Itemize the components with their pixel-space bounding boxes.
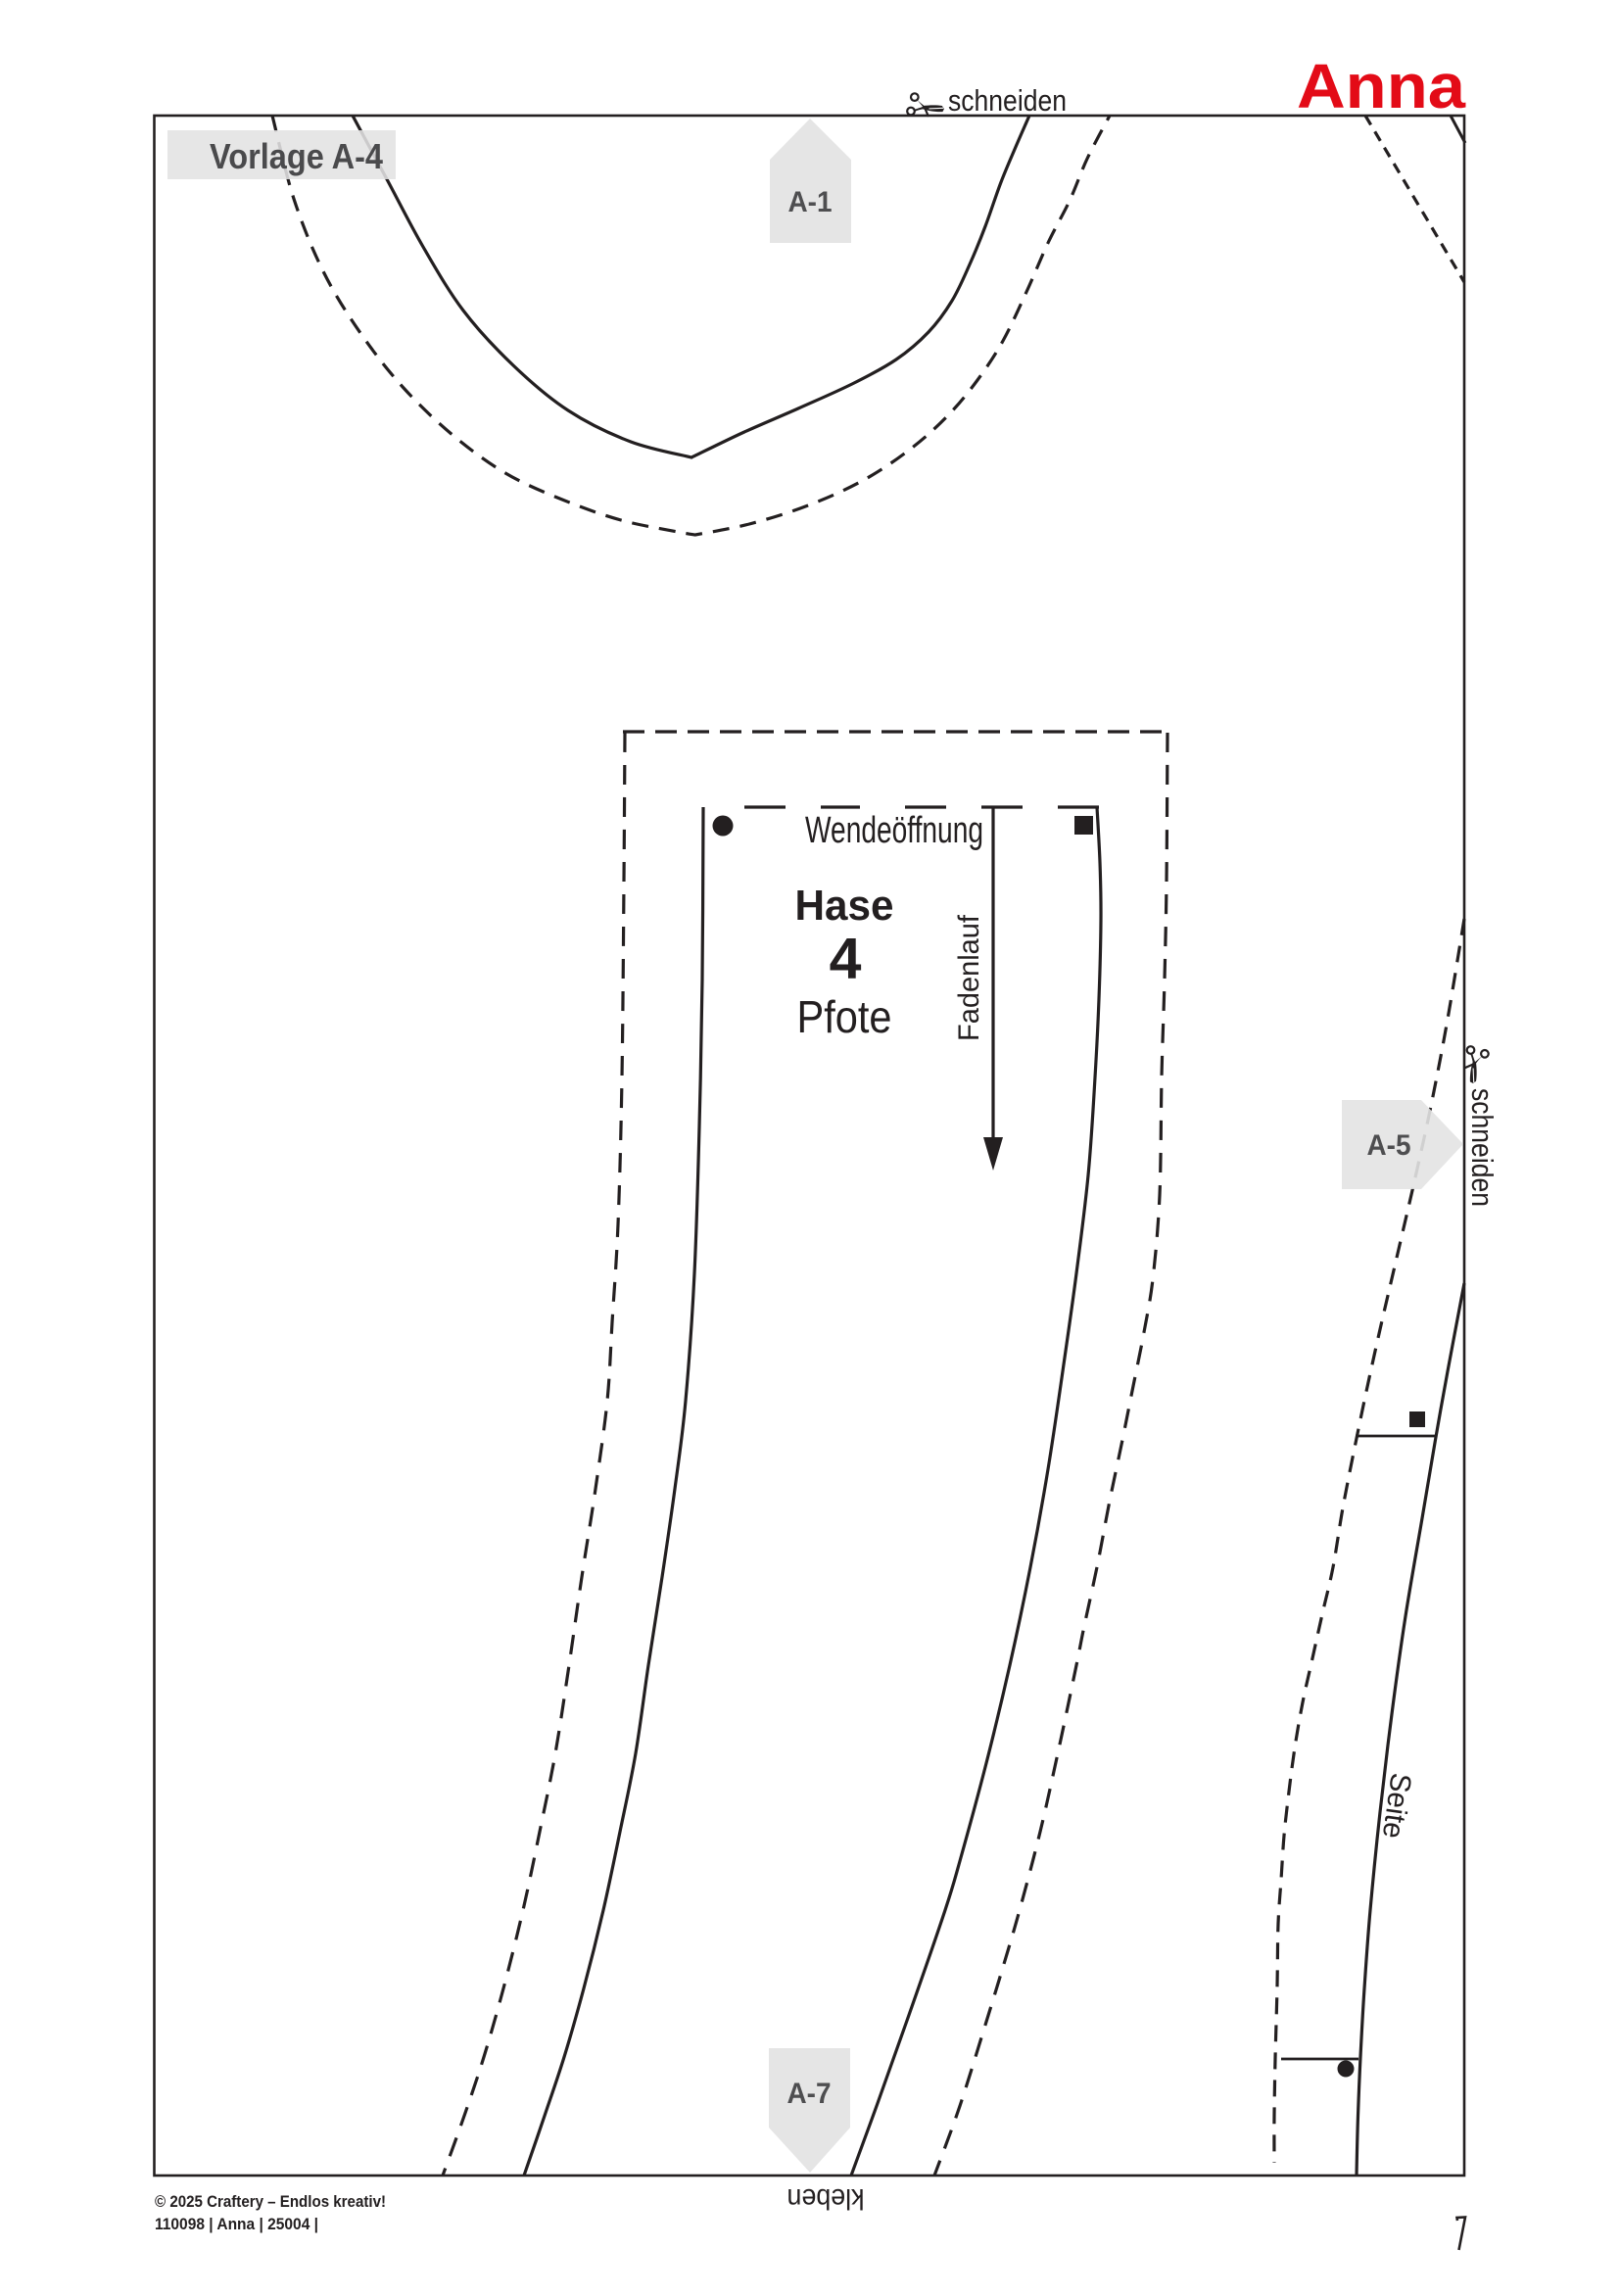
- svg-text:Hase: Hase: [795, 882, 894, 930]
- svg-text:Fadenlauf: Fadenlauf: [953, 914, 985, 1041]
- svg-text:Wendeöffnung: Wendeöffnung: [805, 810, 983, 851]
- svg-text:Vorlage A-4: Vorlage A-4: [210, 136, 383, 176]
- svg-text:© 2025 Craftery – Endlos kreat: © 2025 Craftery – Endlos kreativ!: [155, 2192, 386, 2211]
- svg-text:A-5: A-5: [1367, 1129, 1411, 1162]
- svg-text:schneiden: schneiden: [1465, 1088, 1500, 1207]
- svg-text:kleben: kleben: [787, 2182, 865, 2215]
- svg-text:schneiden: schneiden: [948, 83, 1067, 118]
- svg-text:4: 4: [830, 927, 862, 991]
- svg-text:Anna: Anna: [1297, 51, 1465, 121]
- svg-text:Pfote: Pfote: [797, 991, 892, 1042]
- svg-text:A-7: A-7: [787, 2078, 832, 2110]
- svg-text:110098 | Anna | 25004 |: 110098 | Anna | 25004 |: [155, 2215, 318, 2233]
- svg-text:A-1: A-1: [788, 186, 833, 218]
